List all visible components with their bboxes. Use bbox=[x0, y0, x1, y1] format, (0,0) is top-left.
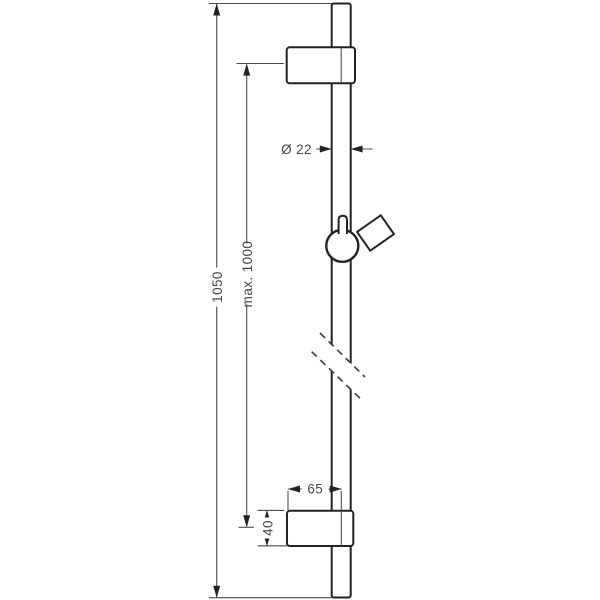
arrow-down-icon bbox=[243, 515, 250, 527]
dim-label-bracket-height: 40 bbox=[260, 520, 275, 536]
arrow-down-icon bbox=[213, 586, 220, 598]
arrow-up-icon bbox=[213, 4, 220, 16]
drawing-canvas: 1050 max. 1000 Ø 22 65 40 bbox=[0, 0, 600, 600]
dim-label-total-length: 1050 bbox=[210, 271, 225, 303]
bottom-bracket bbox=[287, 511, 353, 546]
arrow-left-icon bbox=[288, 486, 300, 493]
arrow-left-icon bbox=[351, 146, 363, 153]
arrow-right-icon bbox=[320, 146, 332, 153]
slider-knob bbox=[326, 230, 358, 262]
dimension-labels: 1050 max. 1000 Ø 22 65 40 bbox=[210, 142, 329, 539]
technical-drawing: 1050 max. 1000 Ø 22 65 40 bbox=[0, 0, 600, 600]
top-bracket bbox=[287, 47, 355, 83]
slider-release-pin bbox=[339, 216, 347, 234]
shower-holder bbox=[357, 215, 394, 250]
dim-label-diameter: Ø 22 bbox=[281, 142, 312, 157]
dim-label-max-mounting: max. 1000 bbox=[240, 241, 255, 308]
dim-label-wall-offset: 65 bbox=[307, 482, 323, 497]
shower-rail bbox=[287, 4, 394, 598]
arrow-up-icon bbox=[243, 64, 250, 76]
